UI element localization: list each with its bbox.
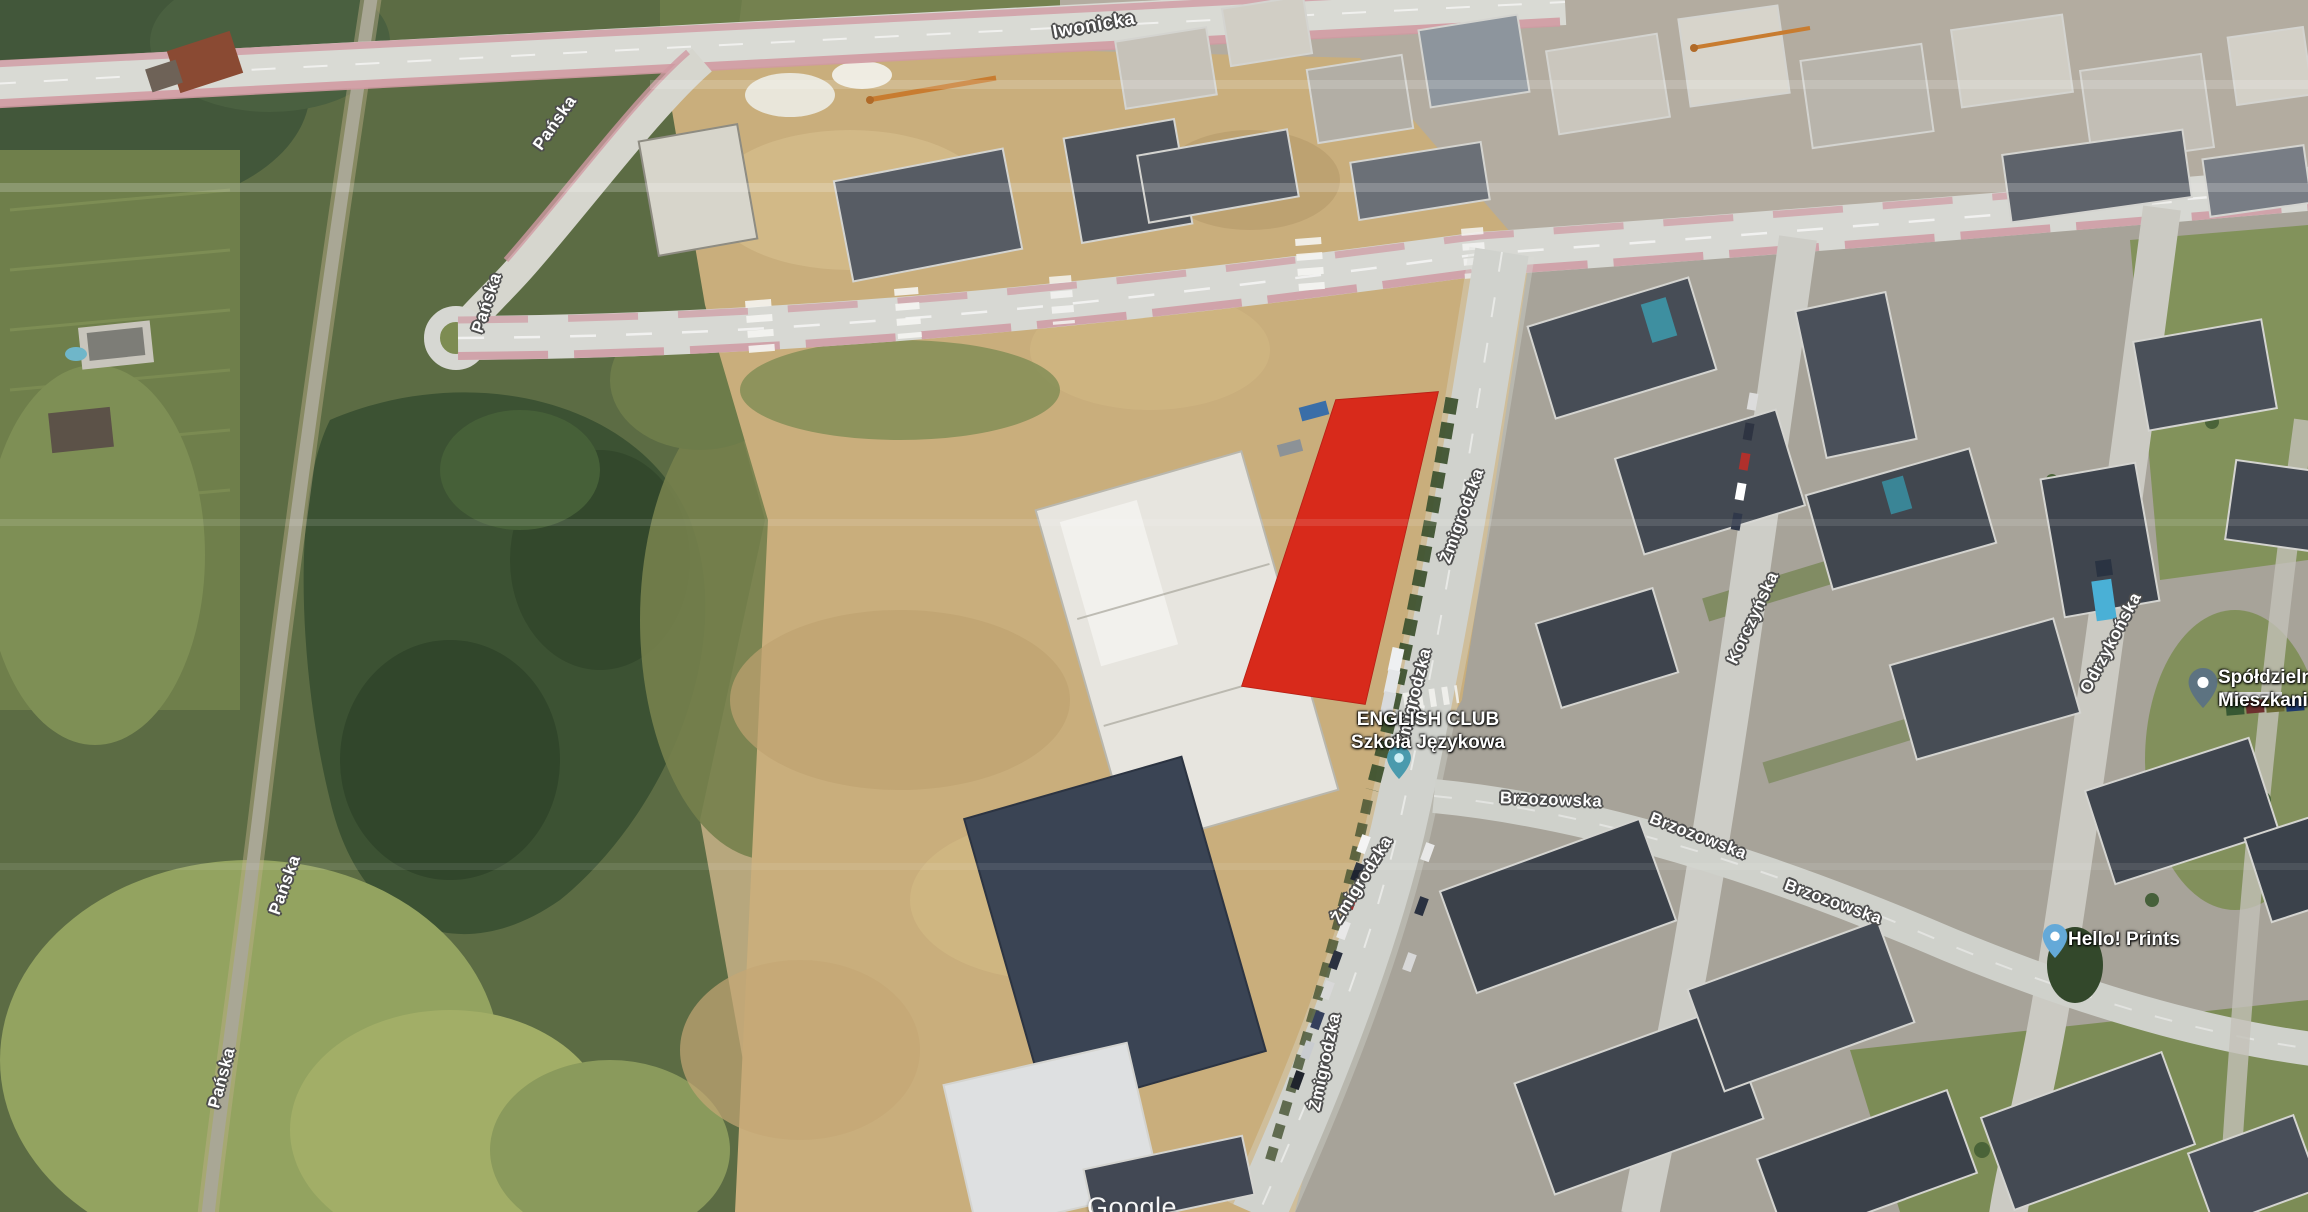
map-canvas[interactable]: Iwonicka Pańska Pańska Pańska Pańska Żmi… bbox=[0, 0, 2308, 1212]
poi-hello-prints[interactable]: Hello! Prints bbox=[2068, 928, 2180, 951]
poi-spoldzielnia-mieszkaniowa[interactable]: Spółdzielnia Mieszkaniowa bbox=[2218, 666, 2308, 712]
poi-hello-prints-title: Hello! Prints bbox=[2068, 928, 2180, 951]
google-watermark: Google bbox=[1087, 1192, 1177, 1212]
poi-spoldzielnia-title: Spółdzielnia bbox=[2218, 666, 2308, 689]
spoldzielnia-pin-icon[interactable] bbox=[2188, 668, 2218, 708]
hello-prints-pin-icon[interactable] bbox=[2042, 924, 2068, 958]
poi-spoldzielnia-subtitle: Mieszkaniowa bbox=[2218, 689, 2308, 712]
poi-english-club[interactable]: ENGLISH CLUB Szkoła Językowa bbox=[1351, 708, 1505, 754]
poi-english-club-subtitle: Szkoła Językowa bbox=[1351, 731, 1505, 754]
poi-english-club-title: ENGLISH CLUB bbox=[1351, 708, 1505, 731]
street-label-brzozowska-1: Brzozowska bbox=[1500, 788, 1603, 812]
satellite-imagery bbox=[0, 0, 2308, 1212]
